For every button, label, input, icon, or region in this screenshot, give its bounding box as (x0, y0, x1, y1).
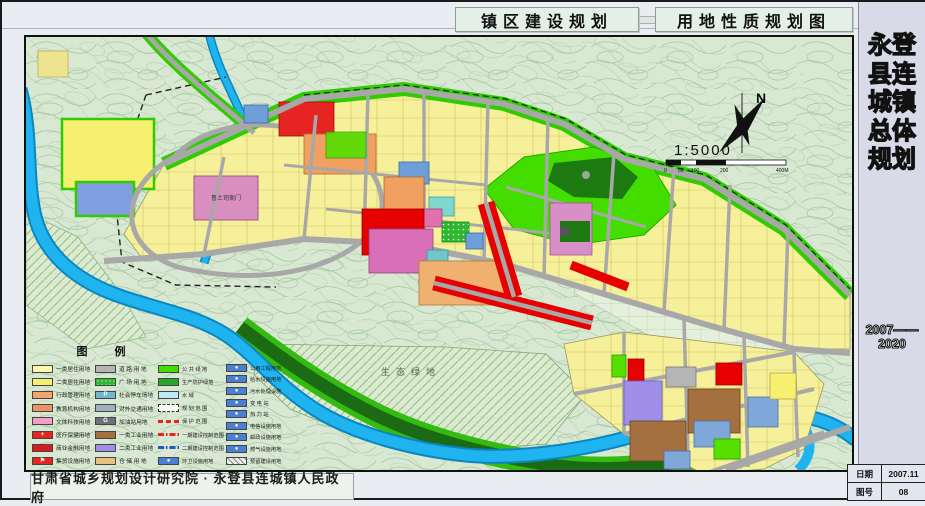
legend-item: 二类工业用地 (95, 441, 155, 454)
legend: 图 例 一类居住用地二类居住用地行政管理用地教育机构用地文体科技用地+医疗保健用… (32, 343, 288, 468)
svg-text:0: 0 (664, 168, 667, 174)
legend-item-label: 社会停车场地 (119, 391, 153, 400)
legend-item: 预留建设用地 (226, 455, 288, 467)
legend-item-label: 文体科技用地 (56, 417, 90, 426)
legend-item: 水 域 (158, 388, 223, 401)
date-label: 日期 (847, 464, 882, 483)
legend-item-label: 变 电 站 (250, 399, 269, 407)
legend-item: ●给水设施用地 (226, 374, 288, 386)
legend-item: 教育机构用地 (32, 402, 92, 415)
legend-item: 一期建设控制范围 (158, 428, 223, 441)
legend-item-label: 一类居住用地 (56, 364, 90, 373)
legend-item-label: 仓 储 用 地 (119, 457, 147, 466)
legend-column-4: ●公用工程用地●给水设施用地●污水处理设施●变 电 站●热 力 站●电信设施用地… (226, 362, 288, 468)
legend-swatch-symbol: ● (226, 410, 247, 418)
legend-item-label: 污水处理设施 (250, 387, 281, 395)
title-connector (637, 16, 657, 24)
legend-item-label: 对外交通用地 (119, 404, 153, 413)
legend-item: 二期建设控制范围 (158, 441, 223, 454)
legend-item-label: 公 共 绿 地 (182, 365, 207, 373)
sheet-number-value: 08 (881, 482, 925, 501)
legend-item-label: 医疗保健用地 (56, 430, 90, 439)
legend-title: 图 例 (32, 343, 182, 359)
legend-item-label: 教育机构用地 (56, 404, 90, 413)
legend-swatch-symbol: ● (226, 364, 247, 372)
legend-swatch-line-dashdot (158, 446, 179, 449)
legend-swatch-solid (32, 365, 53, 373)
legend-item-label: 广 场 用 地 (119, 378, 147, 387)
info-table: 日期 2007.11 图号 08 (847, 464, 925, 500)
legend-column-2: 道 路 用 地广 场 用 地P社会停车场地对外交通用地G加油站用地一类工业用地二… (95, 362, 155, 468)
svg-text:200: 200 (720, 168, 729, 174)
legend-swatch-dots (95, 378, 116, 386)
legend-column-1: 一类居住用地二类居住用地行政管理用地教育机构用地文体科技用地+医疗保健用地商业金… (32, 362, 92, 468)
credit-box: 甘肃省城乡规划设计研究院 · 永登县连城镇人民政府 (30, 473, 354, 500)
legend-swatch-symbol: + (32, 431, 53, 439)
legend-item: P社会停车场地 (95, 388, 155, 401)
legend-item: ●热 力 站 (226, 408, 288, 420)
legend-swatch-solid (95, 457, 116, 465)
legend-item: 仓 储 用 地 (95, 454, 155, 467)
legend-item: ●污水处理设施 (226, 385, 288, 397)
legend-item: 保 护 范 围 (158, 415, 223, 428)
page: 镇区建设规划 用地性质规划图 (0, 0, 925, 500)
legend-column-3: 公 共 绿 地生产防护绿地水 域规 划 范 围保 护 范 围一期建设控制范围二期… (158, 362, 223, 468)
legend-swatch-solid (32, 391, 53, 399)
date-value: 2007.11 (881, 464, 925, 483)
legend-swatch-symbol: ● (226, 422, 247, 430)
scale-text: 1:5000 (674, 142, 732, 159)
legend-item-label: 道 路 用 地 (119, 364, 147, 373)
legend-item-label: 加油站用地 (119, 417, 148, 426)
legend-swatch-symbol: P (95, 391, 116, 399)
legend-swatch-line-dashed (158, 420, 179, 423)
legend-item: 商业金融用地 (32, 441, 92, 454)
legend-item: ●变 电 站 (226, 397, 288, 409)
legend-item-label: 邮政设施用地 (250, 434, 281, 442)
svg-text:50: 50 (678, 168, 684, 174)
legend-item-label: 二类工业用地 (119, 443, 153, 452)
legend-item-label: 二类居住用地 (56, 378, 90, 387)
legend-item: 对外交通用地 (95, 402, 155, 415)
legend-item: +医疗保健用地 (32, 428, 92, 441)
legend-item-label: 公用工程用地 (250, 364, 281, 372)
legend-swatch-solid (32, 404, 53, 412)
legend-swatch-solid (32, 444, 53, 452)
legend-item-label: 电信设施用地 (250, 422, 281, 430)
label-lu-yamen: 鲁土司衙门 (211, 194, 241, 202)
legend-item-label: 水 域 (182, 391, 194, 399)
legend-swatch-symbol: ● (226, 375, 247, 383)
plan-title-vertical: 永登县连城镇总体规划 (865, 32, 919, 175)
legend-swatch-symbol: ⚑ (32, 457, 53, 465)
sidebar: 永登县连城镇总体规划 2007——2020 (858, 2, 925, 498)
legend-swatch-symbol: ● (226, 433, 247, 441)
legend-swatch-solid (95, 365, 116, 373)
legend-columns: 一类居住用地二类居住用地行政管理用地教育机构用地文体科技用地+医疗保健用地商业金… (32, 362, 288, 468)
legend-item: ●邮政设施用地 (226, 432, 288, 444)
legend-item-label: 热 力 站 (250, 410, 269, 418)
legend-item-label: 环卫设施用地 (182, 457, 213, 465)
legend-swatch-symbol: ● (226, 399, 247, 407)
legend-item: 规 划 范 围 (158, 402, 223, 415)
legend-item-label: 行政管理用地 (56, 391, 90, 400)
legend-item: ●电信设施用地 (226, 420, 288, 432)
legend-item-label: 预留建设用地 (250, 457, 281, 465)
legend-item-label: 一期建设控制范围 (182, 431, 224, 439)
legend-swatch-symbol: ● (158, 457, 179, 465)
legend-swatch-solid (158, 391, 179, 399)
legend-item-label: 给水设施用地 (250, 376, 281, 384)
legend-item: 二类居住用地 (32, 375, 92, 388)
plan-period: 2007——2020 (865, 324, 919, 352)
legend-item: 生产防护绿地 (158, 375, 223, 388)
legend-swatch-solid (158, 378, 179, 386)
north-label: N (756, 90, 766, 106)
legend-item: 一类工业用地 (95, 428, 155, 441)
legend-swatch-symbol: ● (226, 387, 247, 395)
page-title-primary: 镇区建设规划 (455, 7, 639, 32)
legend-item-label: 燃气设施用地 (250, 445, 281, 453)
period-start: 2007— (866, 323, 906, 337)
legend-swatch-dashbox (158, 404, 179, 412)
legend-item: 文体科技用地 (32, 415, 92, 428)
label-eco-green: 生态绿地 (381, 366, 441, 377)
park-monument (582, 171, 590, 179)
legend-item: ●燃气设施用地 (226, 443, 288, 455)
legend-swatch-hatch (226, 457, 247, 465)
legend-swatch-solid (95, 431, 116, 439)
legend-item: 一类居住用地 (32, 362, 92, 375)
legend-item-label: 保 护 范 围 (182, 418, 207, 426)
legend-swatch-symbol: G (95, 417, 116, 425)
legend-swatch-solid (95, 444, 116, 452)
legend-swatch-solid (32, 417, 53, 425)
page-title-secondary: 用地性质规划图 (655, 7, 853, 32)
legend-swatch-solid (158, 365, 179, 373)
legend-swatch-solid (32, 378, 53, 386)
legend-swatch-symbol: ● (226, 445, 247, 453)
svg-text:400M: 400M (776, 168, 789, 174)
legend-item: ●公用工程用地 (226, 362, 288, 374)
legend-item: 广 场 用 地 (95, 375, 155, 388)
sheet-number-label: 图号 (847, 482, 882, 501)
legend-item-label: 集贸设施用地 (56, 457, 90, 466)
legend-item-label: 商业金融用地 (56, 443, 90, 452)
legend-item: ⚑集贸设施用地 (32, 454, 92, 467)
legend-item-label: 二期建设控制范围 (182, 444, 224, 452)
legend-item: ●环卫设施用地 (158, 454, 223, 467)
legend-item-label: 规 划 范 围 (182, 404, 207, 412)
legend-swatch-line-dashdot (158, 433, 179, 436)
legend-item: 道 路 用 地 (95, 362, 155, 375)
legend-item: 行政管理用地 (32, 388, 92, 401)
legend-item-label: 一类工业用地 (119, 430, 153, 439)
legend-item: G加油站用地 (95, 415, 155, 428)
legend-item: 公 共 绿 地 (158, 362, 223, 375)
legend-item-label: 生产防护绿地 (182, 378, 213, 386)
svg-text:100: 100 (691, 168, 700, 174)
legend-swatch-solid (95, 404, 116, 412)
